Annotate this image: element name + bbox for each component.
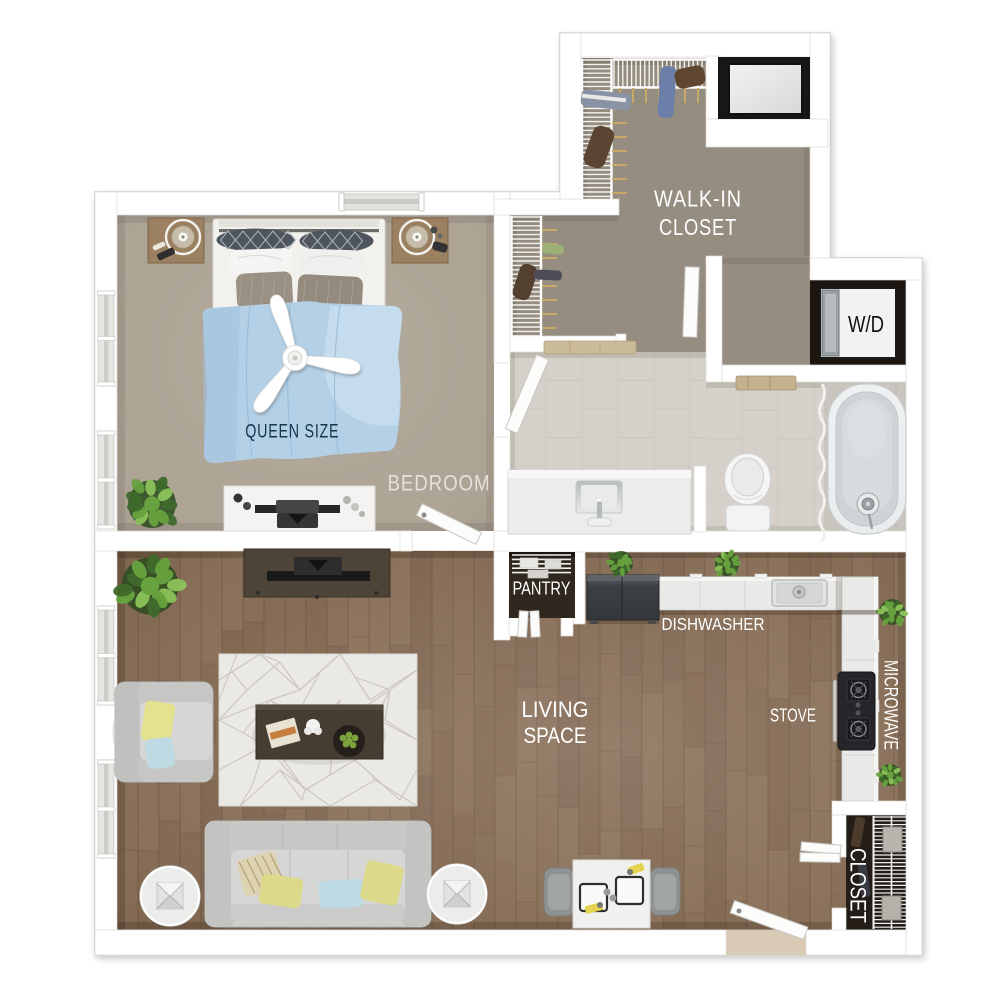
svg-text:PANTRY: PANTRY bbox=[513, 579, 571, 599]
svg-text:LIVING: LIVING bbox=[522, 697, 589, 722]
svg-text:CLOSET: CLOSET bbox=[659, 214, 737, 240]
svg-text:STOVE: STOVE bbox=[770, 706, 816, 726]
svg-text:BEDROOM: BEDROOM bbox=[388, 471, 491, 496]
svg-text:CLOSET: CLOSET bbox=[846, 848, 871, 923]
svg-text:DISHWASHER: DISHWASHER bbox=[662, 614, 765, 634]
svg-text:MICROWAVE: MICROWAVE bbox=[880, 660, 901, 750]
svg-text:SPACE: SPACE bbox=[524, 723, 587, 748]
svg-text:W/D: W/D bbox=[848, 311, 884, 337]
svg-text:QUEEN SIZE: QUEEN SIZE bbox=[245, 422, 339, 443]
svg-text:WALK-IN: WALK-IN bbox=[654, 186, 742, 212]
